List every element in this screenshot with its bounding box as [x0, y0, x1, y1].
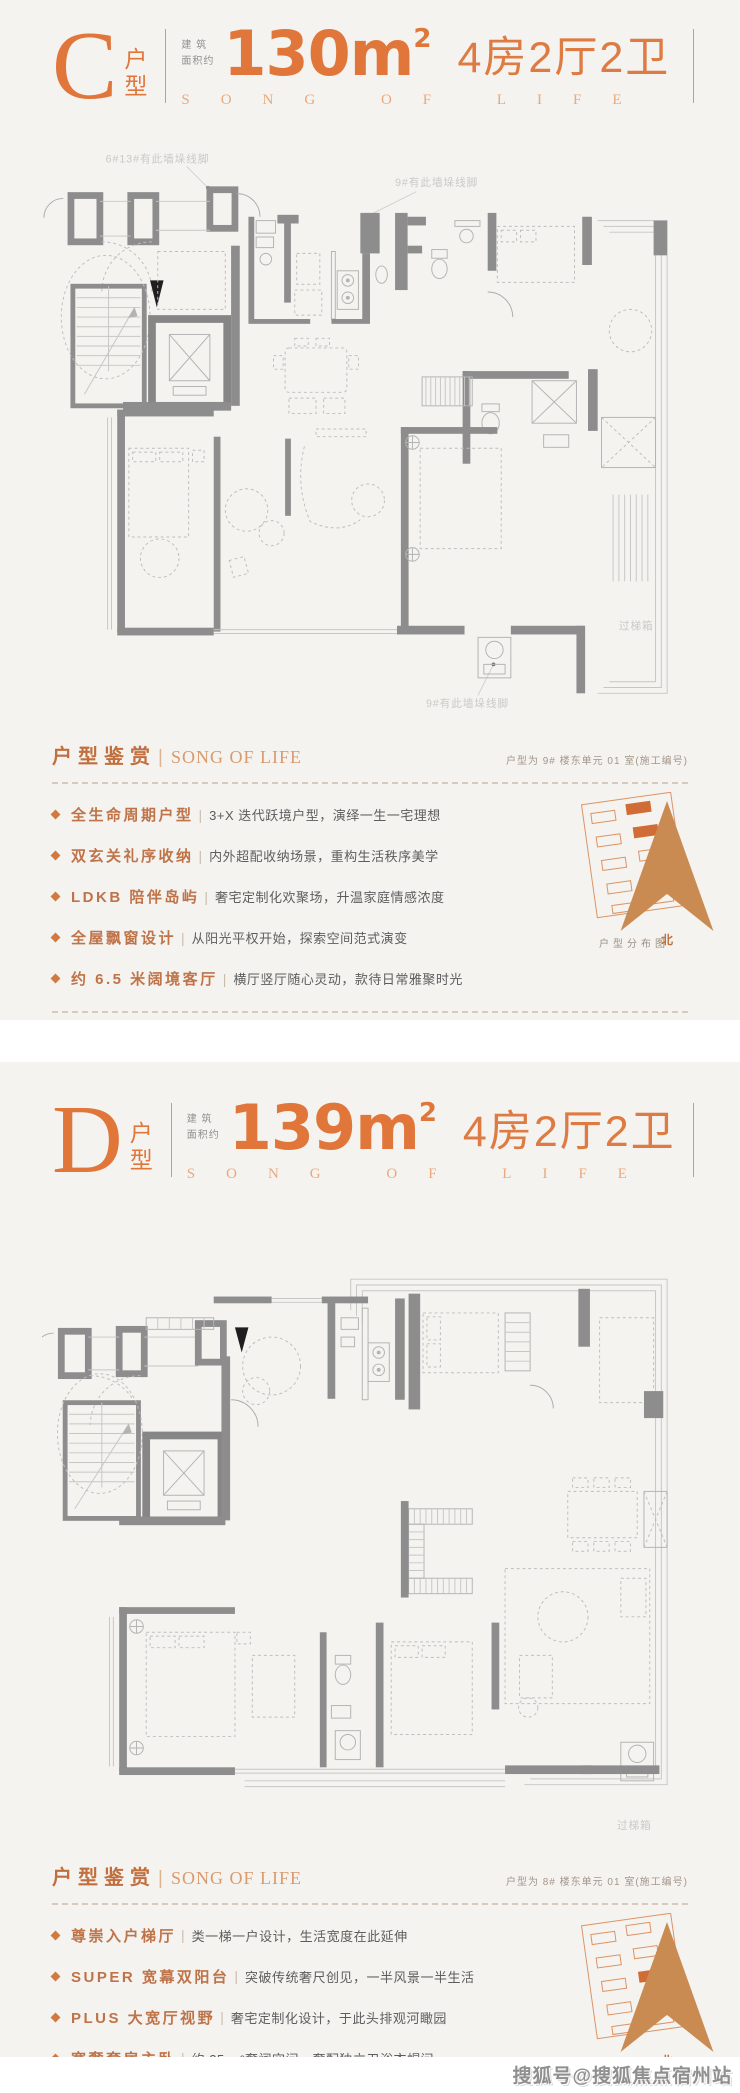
section-title-divider: | — [158, 1868, 163, 1890]
feature-desc: 横厅竖厅随心灵动，款待日常雅聚时光 — [233, 969, 463, 988]
middle-bedroom-bath — [320, 1623, 499, 1768]
area-prefix: 建 筑 面积约 — [181, 38, 214, 70]
star-icon — [51, 1971, 61, 1981]
star-icon — [51, 810, 61, 820]
upper-right-rooms — [395, 213, 592, 317]
feature-item: PLUS 大宽厅视野|奢宅定制化设计，于此头排观河瞰园 — [52, 2007, 522, 2028]
feature-head: PLUS 大宽厅视野 — [71, 2007, 215, 2028]
floor-plan-d: 过梯箱 — [42, 1202, 698, 1839]
section-title-divider: | — [158, 747, 163, 769]
feature-separator: | — [199, 848, 203, 864]
kitchen-and-bath — [248, 213, 387, 324]
bottom-wall-balcony — [117, 626, 585, 694]
middle-bath-wardrobe — [422, 371, 576, 464]
dining-area — [568, 1478, 667, 1551]
feature-item: 双玄关礼序收纳|内外超配收纳场景，重构生活秩序美学 — [52, 845, 522, 866]
unit-card-c: C 户型 建 筑 面积约 130m2 4房2厅2卫 SONG OF LIFE — [0, 0, 740, 1020]
north-arrow-icon — [608, 801, 726, 931]
feature-desc: 奢宅定制化设计，于此头排观河瞰园 — [231, 2008, 447, 2027]
feature-head: 全生命周期户型 — [71, 804, 194, 825]
feature-head: LDKB 陪伴岛屿 — [71, 886, 199, 907]
plan-header-d: D 户型 建 筑 面积约 139m2 4房2厅2卫 SONG OF LIFE — [0, 1092, 740, 1188]
feature-item: 全屋飘窗设计|从阳光平权开始，探索空间范式演变 — [52, 927, 522, 948]
annotation-side: 过梯箱 — [619, 620, 654, 633]
unit-letter-suffix: 户型 — [124, 46, 150, 100]
area-prefix-line2: 面积约 — [181, 54, 214, 70]
kitchen — [328, 1298, 405, 1399]
page: C 户型 建 筑 面积约 130m2 4房2厅2卫 SONG OF LIFE — [0, 0, 740, 2093]
compass-label: 北 — [661, 931, 673, 948]
area-value: 139m2 — [229, 1100, 437, 1156]
annotation-top-left: 6#13#有此墙垛线脚 — [106, 153, 210, 166]
feature-separator: | — [181, 930, 185, 946]
rooms-label: 4房2厅2卫 — [458, 23, 671, 85]
feature-desc: 从阳光平权开始，探索空间范式演变 — [192, 928, 408, 947]
area-prefix-line1: 建 筑 — [181, 38, 214, 54]
bottom-bedrooms-living — [108, 410, 502, 632]
area-superscript: 2 — [413, 24, 431, 54]
header-divider-right — [693, 1103, 694, 1177]
dining-area — [274, 338, 359, 413]
living-room — [505, 1569, 650, 1718]
appreciation-section-d: 户型鉴赏 | SONG OF LIFE 户型为 8# 楼东单元 01 室(施工编… — [0, 1861, 740, 2057]
compass-label: 北 — [661, 2052, 673, 2057]
master-bedroom — [110, 1607, 295, 1771]
feature-item: LDKB 陪伴岛屿|奢宅定制化欢聚场，升温家庭情感浓度 — [52, 886, 522, 907]
feature-list: 尊崇入户梯厅|类一梯一户设计，生活宽度在此延伸 SUPER 宽幕双阳台|突破传统… — [52, 1925, 522, 2057]
star-icon — [51, 2012, 61, 2022]
feature-separator: | — [234, 1968, 238, 1984]
compass: 北 — [608, 801, 726, 948]
feature-item: 约 6.5 米阔境客厅|横厅竖厅随心灵动，款待日常雅聚时光 — [52, 968, 522, 989]
feature-head: 宽奢套房主卧 — [71, 2048, 176, 2057]
rooms-label: 4房2厅2卫 — [463, 1097, 676, 1159]
plan-header-c: C 户型 建 筑 面积约 130m2 4房2厅2卫 SONG OF LIFE — [0, 18, 740, 114]
north-arrow-icon — [608, 1922, 726, 2052]
area-prefix: 建 筑 面积约 — [187, 1112, 220, 1144]
unit-letter-suffix: 户型 — [130, 1120, 156, 1174]
section-heading-row: 户型鉴赏 | SONG OF LIFE 户型为 9# 楼东单元 01 室(施工编… — [52, 740, 688, 769]
unit-location-note: 户型为 8# 楼东单元 01 室(施工编号) — [506, 1873, 688, 1890]
header-main: 建 筑 面积约 139m2 4房2厅2卫 SONG OF LIFE — [187, 1097, 683, 1183]
floor-plan-c: 6#13#有此墙垛线脚 9#有此墙垛线脚 9#有此墙垛线脚 过梯箱 — [42, 128, 698, 718]
feature-item: SUPER 宽幕双阳台|突破传统奢尺创见，一半风景一半生活 — [52, 1966, 522, 1987]
header-subtitle: SONG OF LIFE — [187, 1166, 683, 1183]
feature-desc: 突破传统奢尺创见，一半风景一半生活 — [245, 1967, 475, 1986]
compass: 北 — [608, 1922, 726, 2057]
star-icon — [51, 2053, 61, 2057]
feature-item: 尊崇入户梯厅|类一梯一户设计，生活宽度在此延伸 — [52, 1925, 522, 1946]
walk-in-wardrobe — [401, 1501, 472, 1597]
watermark: 搜狐号@搜狐焦点宿州站 — [512, 2061, 732, 2088]
area-superscript: 2 — [419, 1098, 437, 1128]
feature-separator: | — [181, 2050, 185, 2057]
site-plan-thumb: 户型分布图 北 — [568, 792, 700, 950]
header-divider — [171, 1103, 172, 1177]
feature-separator: | — [199, 807, 203, 823]
site-plan-thumb: 户型分布图 北 — [568, 1913, 700, 2057]
feature-separator: | — [181, 1927, 185, 1943]
feature-head: SUPER 宽幕双阳台 — [71, 1966, 229, 1987]
header-subtitle: SONG OF LIFE — [181, 92, 683, 109]
unit-letter: D — [52, 1097, 123, 1183]
section-title: 户型鉴赏 — [52, 740, 156, 769]
bottom-wall-balcony — [119, 1742, 659, 1786]
feature-item: 宽奢套房主卧|约 25 m²奢阔空间，奢配独立卫浴衣帽间 — [52, 2048, 522, 2057]
header-divider-right — [693, 29, 694, 103]
section-title-en: SONG OF LIFE — [171, 747, 302, 768]
floor-plan-d-wrap: 过梯箱 — [0, 1202, 740, 1839]
unit-card-d: D 户型 建 筑 面积约 139m2 4房2厅2卫 SONG OF LIFE — [0, 1062, 740, 2057]
unit-letter: C — [52, 23, 117, 109]
core-stair-elevator — [42, 1324, 248, 1526]
area-number: 130 — [223, 17, 349, 90]
appreciation-section-c: 户型鉴赏 | SONG OF LIFE 户型为 9# 楼东单元 01 室(施工编… — [0, 740, 740, 1013]
feature-head: 双玄关礼序收纳 — [71, 845, 194, 866]
feature-head: 尊崇入户梯厅 — [71, 1925, 176, 1946]
upper-right-bedroom — [409, 1289, 664, 1418]
feature-separator: | — [220, 2009, 224, 2025]
section-title-en: SONG OF LIFE — [171, 1868, 302, 1889]
star-icon — [51, 892, 61, 902]
feature-desc: 3+X 迭代跃境户型，演绎一生一宅理想 — [209, 805, 441, 824]
header-main: 建 筑 面积约 130m2 4房2厅2卫 SONG OF LIFE — [181, 23, 683, 109]
core-stair-elevator — [44, 190, 260, 411]
dashed-divider-bottom — [52, 1011, 688, 1013]
feature-head: 全屋飘窗设计 — [71, 927, 176, 948]
feature-head: 约 6.5 米阔境客厅 — [71, 968, 218, 989]
feature-desc: 约 25 m²奢阔空间，奢配独立卫浴衣帽间 — [192, 2049, 434, 2057]
star-icon — [51, 933, 61, 943]
feature-list: 全生命周期户型|3+X 迭代跃境户型，演绎一生一宅理想 双玄关礼序收纳|内外超配… — [52, 804, 522, 989]
annotation-bottom: 9#有此墙垛线脚 — [426, 697, 509, 710]
floor-plan-c-wrap: 6#13#有此墙垛线脚 9#有此墙垛线脚 9#有此墙垛线脚 过梯箱 — [0, 128, 740, 718]
star-icon — [51, 851, 61, 861]
area-unit: m — [350, 17, 414, 90]
star-icon — [51, 974, 61, 984]
section-title: 户型鉴赏 — [52, 1861, 156, 1890]
feature-separator: | — [204, 889, 208, 905]
section-heading-row: 户型鉴赏 | SONG OF LIFE 户型为 8# 楼东单元 01 室(施工编… — [52, 1861, 688, 1890]
annotation-top-right: 9#有此墙垛线脚 — [395, 176, 478, 189]
feature-desc: 奢宅定制化欢聚场，升温家庭情感浓度 — [215, 887, 445, 906]
feature-separator: | — [223, 971, 227, 987]
area-number: 139 — [229, 1091, 355, 1164]
dashed-divider — [52, 1903, 688, 1905]
area-prefix-line2: 面积约 — [187, 1128, 220, 1144]
header-divider — [165, 29, 166, 103]
dashed-divider — [52, 782, 688, 784]
feature-desc: 类一梯一户设计，生活宽度在此延伸 — [192, 1926, 408, 1945]
feature-desc: 内外超配收纳场景，重构生活秩序美学 — [209, 846, 439, 865]
area-prefix-line1: 建 筑 — [187, 1112, 220, 1128]
area-value: 130m2 — [223, 26, 431, 82]
star-icon — [51, 1930, 61, 1940]
area-unit: m — [355, 1091, 419, 1164]
annotation-side: 过梯箱 — [617, 1819, 652, 1832]
feature-item: 全生命周期户型|3+X 迭代跃境户型，演绎一生一宅理想 — [52, 804, 522, 825]
unit-location-note: 户型为 9# 楼东单元 01 室(施工编号) — [506, 752, 688, 769]
